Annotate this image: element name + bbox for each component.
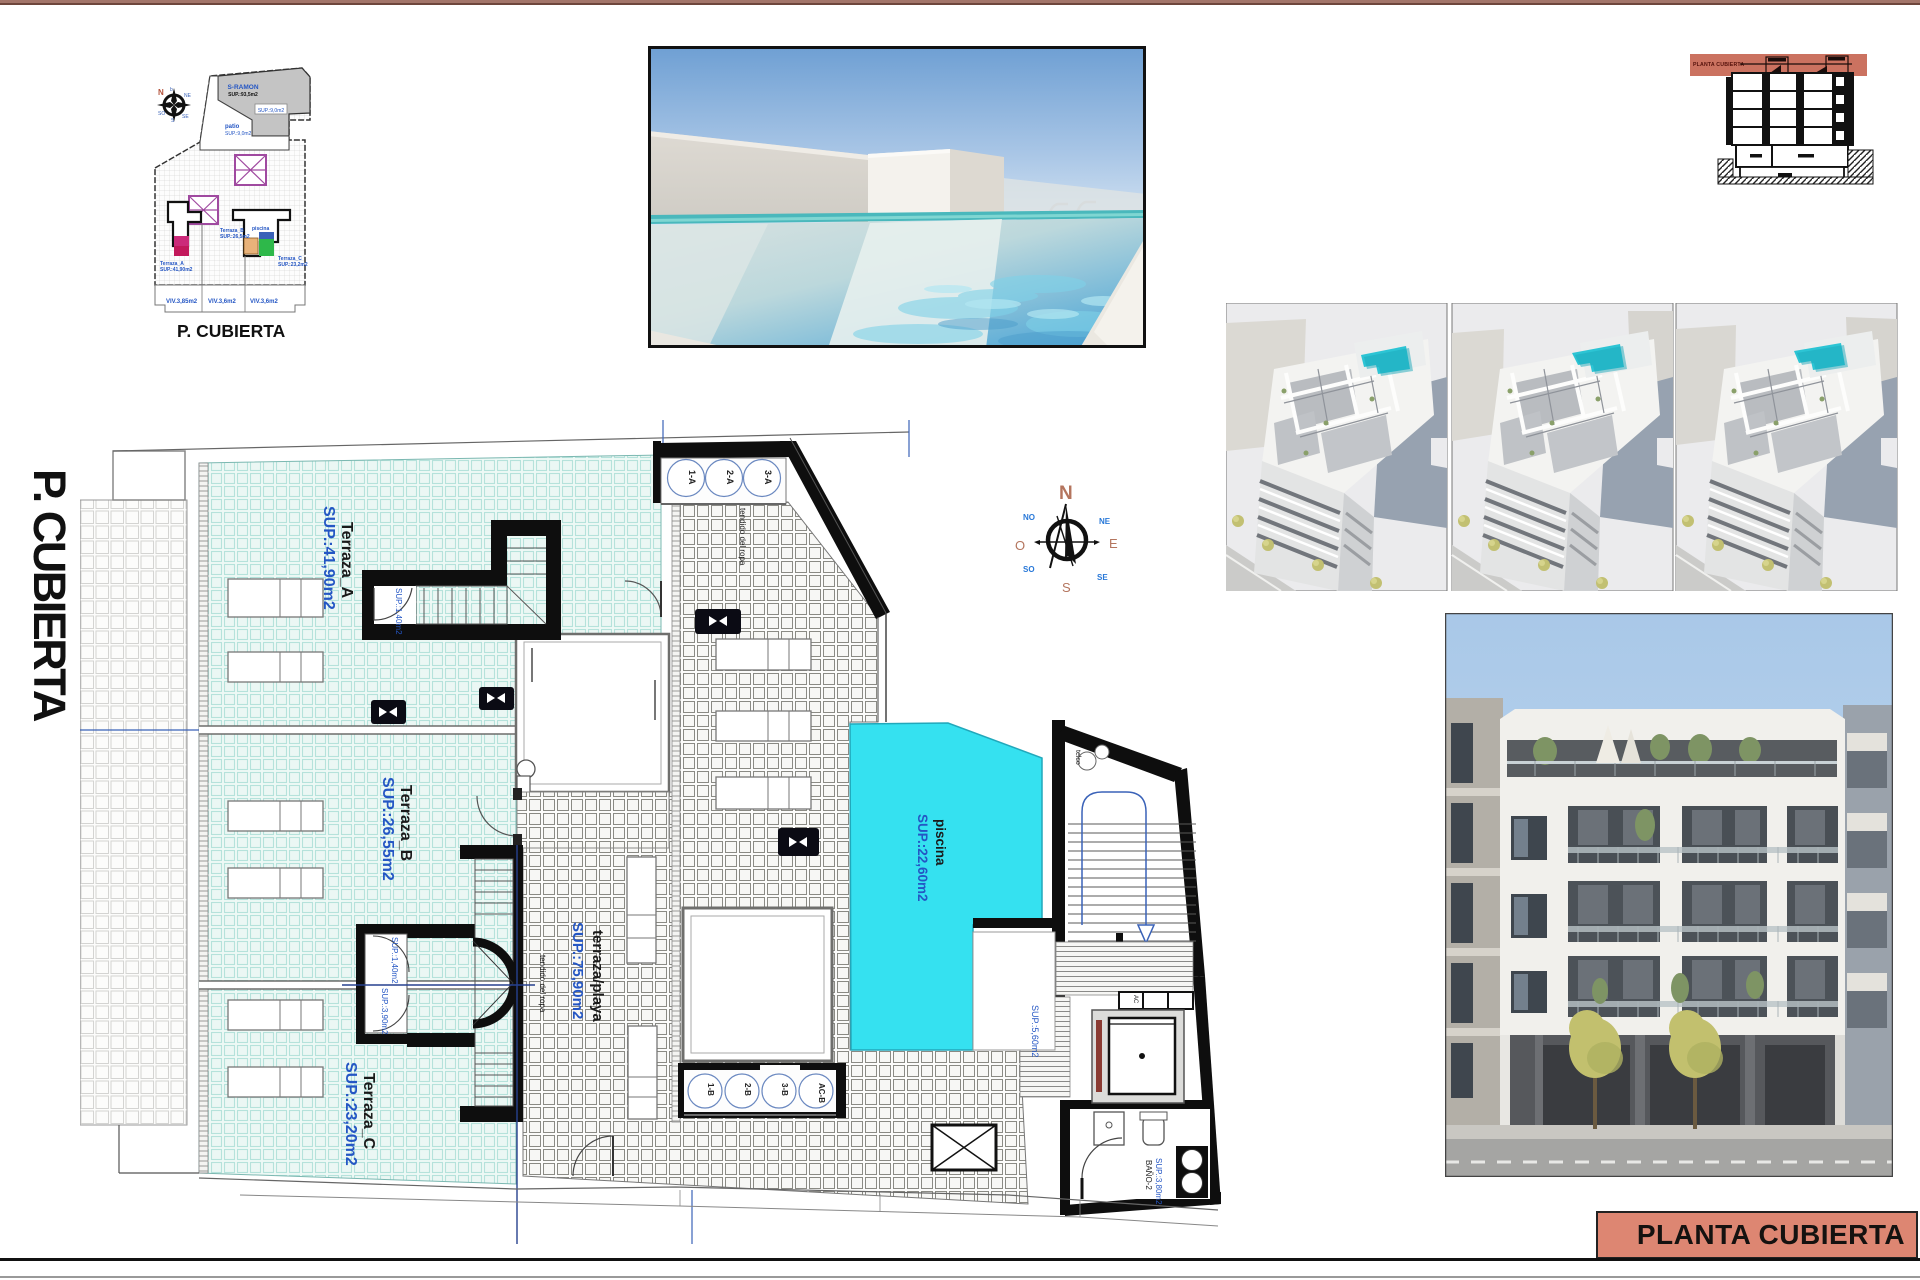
svg-text:SUP.:26,5m2: SUP.:26,5m2 [220,234,250,240]
svg-text:SUP.:3,90m2: SUP.:3,90m2 [380,988,389,1035]
svg-text:NE: NE [184,93,192,99]
svg-text:1-A: 1-A [687,470,697,485]
svg-text:SUP.:41,90m2: SUP.:41,90m2 [160,267,193,273]
svg-text:Terraza_B: Terraza_B [397,785,414,861]
svg-text:SUP.:22,60m2: SUP.:22,60m2 [915,814,930,902]
svg-text:Terraza_C: Terraza_C [360,1073,377,1150]
svg-text:1-B: 1-B [706,1083,715,1096]
svg-text:3-A: 3-A [763,470,773,485]
svg-text:patio: patio [225,124,240,130]
svg-text:NE: NE [1099,517,1111,526]
svg-text:N: N [1059,483,1073,504]
svg-text:SUP.:75,90m2: SUP.:75,90m2 [569,922,586,1019]
svg-text:SUP.:93,5m2: SUP.:93,5m2 [228,92,258,98]
svg-text:S: S [1062,580,1071,595]
svg-text:terraza/playa: terraza/playa [589,930,606,1022]
svg-text:AC-B: AC-B [817,1083,826,1103]
svg-text:SUP.:26,55m2: SUP.:26,55m2 [379,777,396,881]
svg-text:SUP.:23,20m2: SUP.:23,20m2 [342,1062,359,1166]
svg-text:SUP.:9,0m2: SUP.:9,0m2 [258,108,285,114]
svg-text:telco: telco [1074,750,1081,765]
svg-text:VIV.3,6m2: VIV.3,6m2 [250,299,278,305]
svg-text:S-RAMON: S-RAMON [227,84,258,91]
svg-text:BAÑO-2: BAÑO-2 [1144,1160,1153,1190]
svg-text:SE: SE [1097,573,1108,582]
svg-text:P. CUBIERTA: P. CUBIERTA [177,321,286,341]
svg-text:SO: SO [1023,565,1035,574]
svg-text:NO: NO [1023,513,1035,522]
svg-text:E: E [1109,536,1118,551]
svg-text:SUP.:41,90m2: SUP.:41,90m2 [320,506,337,610]
svg-text:SUP.:9,0m2: SUP.:9,0m2 [225,131,252,137]
svg-text:N: N [158,88,164,97]
svg-text:piscina: piscina [933,819,948,866]
svg-text:SUP.:23,2m2: SUP.:23,2m2 [278,262,308,268]
svg-text:O: O [1015,538,1025,553]
svg-text:SUP.:3,80m2: SUP.:3,80m2 [1154,1158,1163,1205]
svg-text:Terraza_A: Terraza_A [338,522,355,599]
svg-text:SUP.:1,40m2: SUP.:1,40m2 [394,588,403,635]
svg-text:VIV.3,85m2: VIV.3,85m2 [166,299,198,305]
svg-text:tendido del ropa: tendido del ropa [538,955,547,1013]
svg-text:tendido del ropa: tendido del ropa [738,508,747,566]
svg-text:b: b [170,87,173,93]
svg-text:VIV.3,6m2: VIV.3,6m2 [208,299,236,305]
svg-text:SUP.:1,40m2: SUP.:1,40m2 [390,937,399,984]
svg-text:piscina: piscina [252,226,269,232]
svg-text:2-A: 2-A [725,470,735,485]
svg-text:SUP.:5,60m2: SUP.:5,60m2 [1030,1005,1040,1057]
svg-text:SO: SO [158,111,165,117]
svg-text:3-B: 3-B [780,1083,789,1096]
svg-text:AC: AC [1132,995,1138,1004]
svg-text:PLANTA CUBIERTA: PLANTA CUBIERTA [1693,62,1744,68]
svg-text:2-B: 2-B [743,1083,752,1096]
svg-text:SE: SE [182,114,189,120]
